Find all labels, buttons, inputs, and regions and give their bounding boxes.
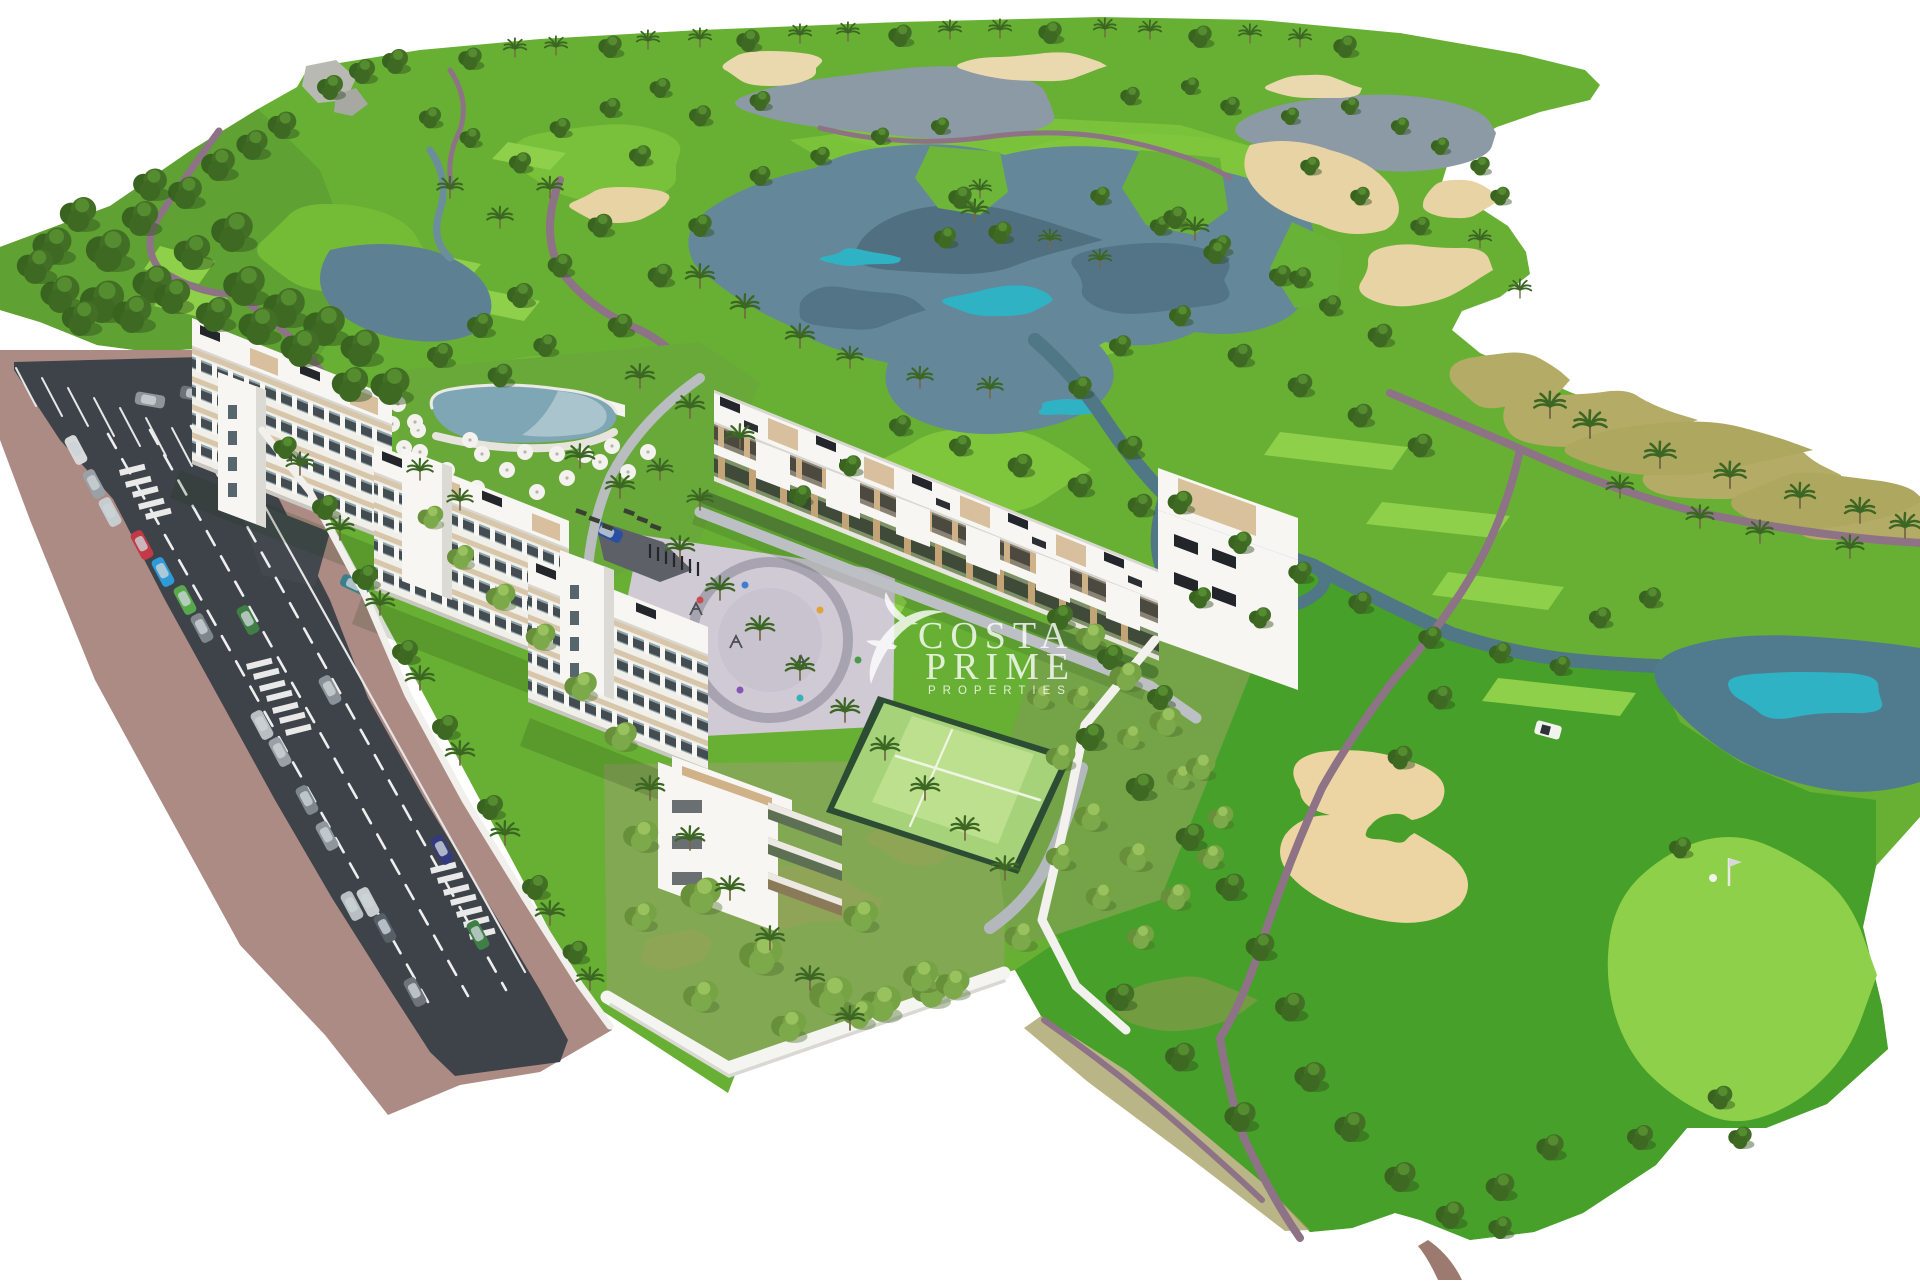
svg-text:PRIME: PRIME [925, 646, 1076, 688]
svg-text:PROPERTIES: PROPERTIES [928, 685, 1072, 697]
